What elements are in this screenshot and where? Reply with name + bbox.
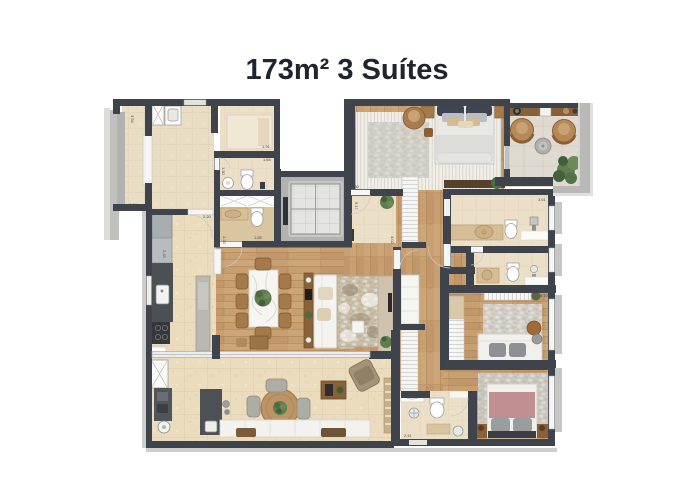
svg-text:5.30: 5.30 [351, 184, 360, 189]
svg-text:1.65: 1.65 [252, 242, 261, 247]
svg-text:1.91: 1.91 [262, 144, 271, 149]
svg-text:5.17: 5.17 [354, 202, 359, 211]
svg-text:4.02: 4.02 [390, 236, 395, 245]
svg-text:2.50: 2.50 [536, 247, 545, 252]
svg-text:1.20: 1.20 [222, 236, 227, 245]
svg-text:1.50: 1.50 [221, 167, 226, 176]
svg-text:2.49: 2.49 [511, 180, 520, 185]
svg-text:4.10: 4.10 [540, 293, 549, 298]
svg-text:2.41: 2.41 [404, 433, 413, 438]
svg-text:0.64: 0.64 [129, 202, 138, 207]
svg-text:2.43: 2.43 [162, 250, 167, 259]
svg-text:1.64: 1.64 [263, 157, 272, 162]
svg-text:173m² 3 Suítes: 173m² 3 Suítes [245, 54, 448, 86]
svg-text:3.61: 3.61 [538, 197, 547, 202]
svg-text:1.65: 1.65 [254, 235, 263, 240]
svg-text:3.54: 3.54 [130, 115, 135, 124]
svg-text:3.05: 3.05 [445, 360, 450, 369]
svg-text:2.20: 2.20 [203, 214, 212, 219]
